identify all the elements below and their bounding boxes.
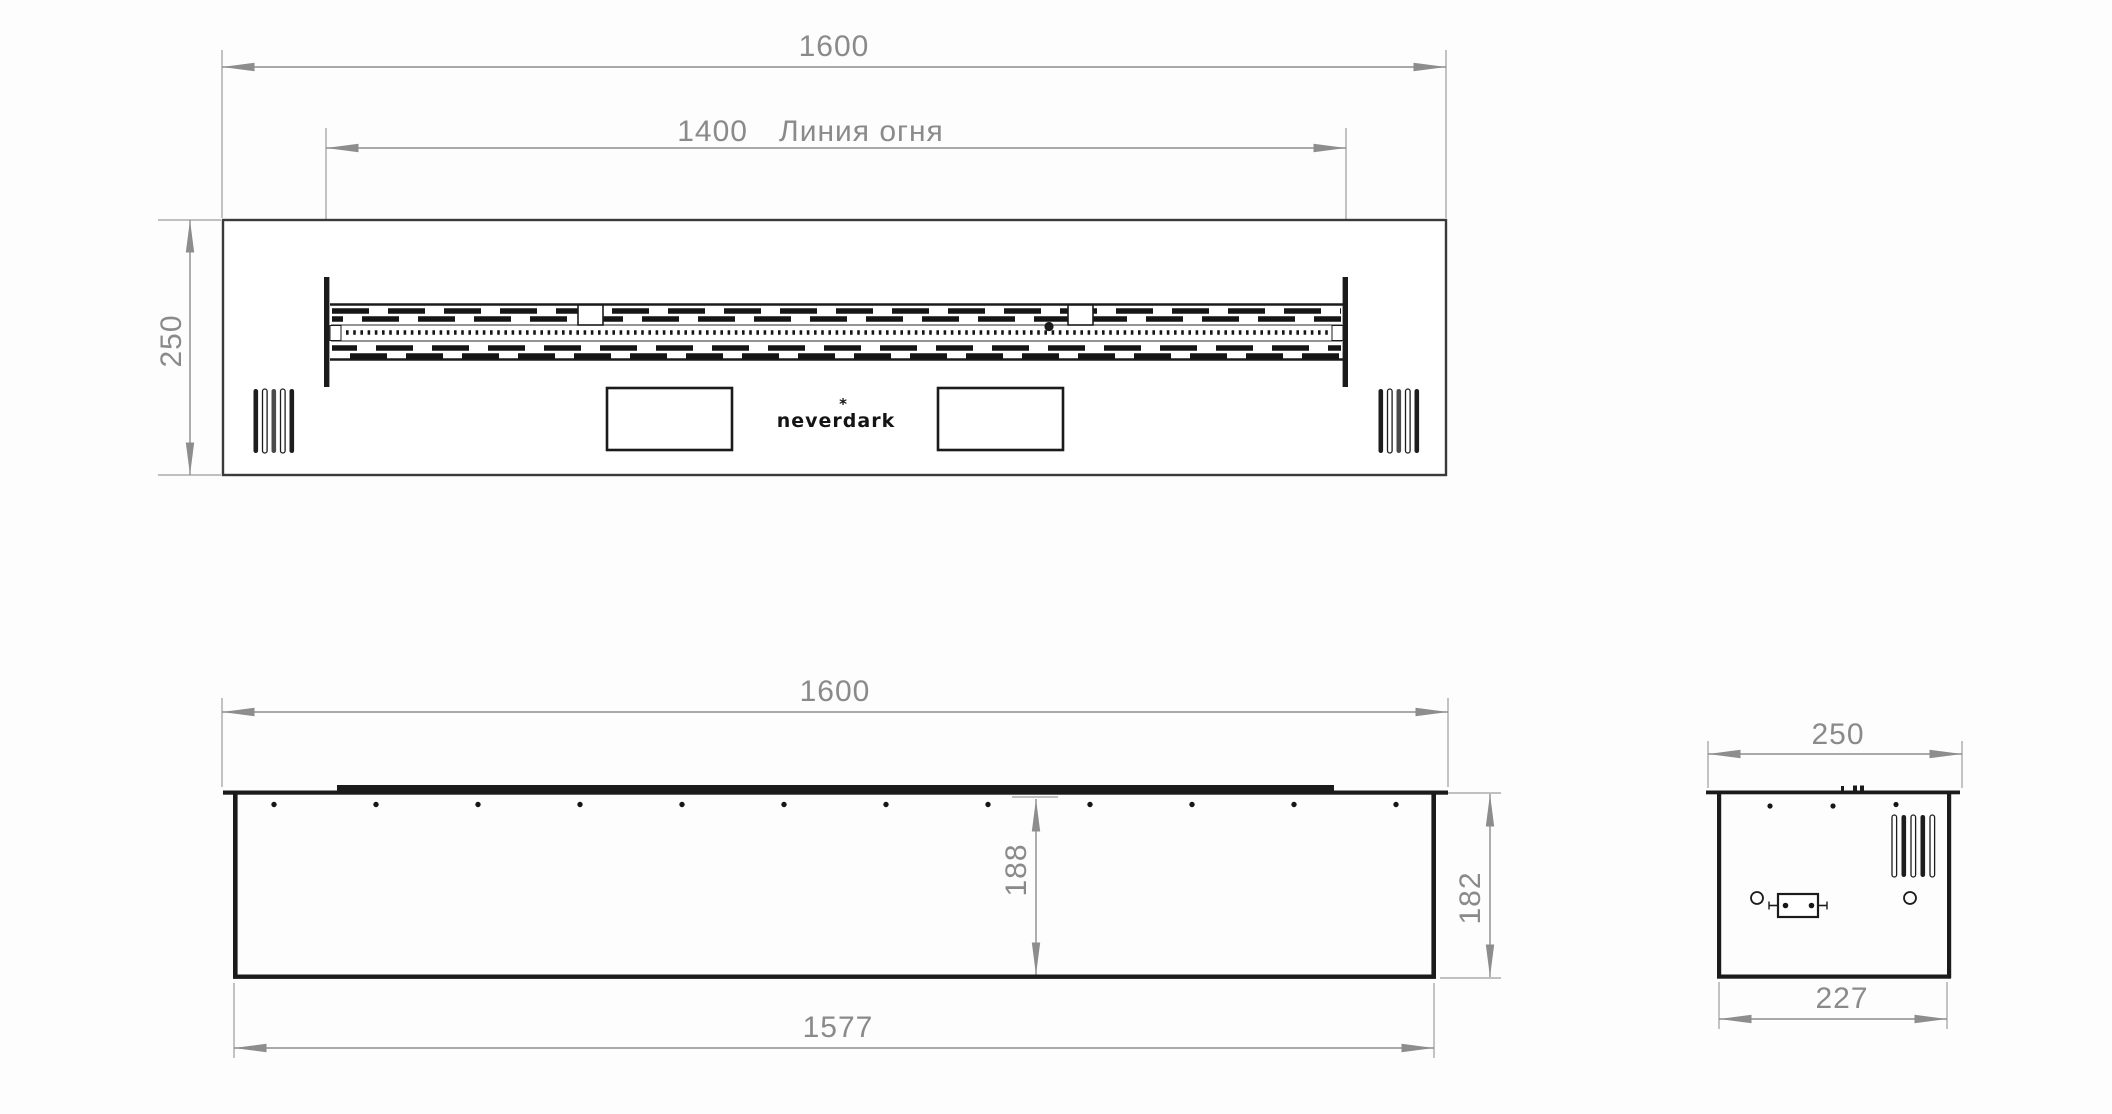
power-connector bbox=[1769, 894, 1827, 917]
front-left-edge bbox=[233, 795, 238, 979]
dimension-drawing-svg: 1600 1400 Линия огня 250 bbox=[0, 0, 2112, 1114]
burner-end-left bbox=[324, 277, 329, 387]
dim-front-inner-height-label: 188 bbox=[1000, 843, 1033, 896]
front-bottom-edge bbox=[233, 975, 1436, 979]
front-right-edge bbox=[1431, 795, 1436, 979]
dim-front-bottom-width: 1577 bbox=[234, 1011, 1434, 1048]
burner-notch-right bbox=[1332, 326, 1343, 341]
side-flange-tick-3 bbox=[1860, 786, 1864, 791]
front-view-extension-lines bbox=[222, 698, 1501, 1058]
side-bottom-edge bbox=[1717, 975, 1951, 979]
dim-front-body-height: 182 bbox=[1454, 794, 1490, 977]
dim-fire-line: 1400 Линия огня bbox=[326, 115, 1346, 148]
side-flange bbox=[1706, 791, 1960, 795]
dim-top-overall-width-label: 1600 bbox=[799, 30, 870, 63]
front-top-lip bbox=[337, 785, 1334, 791]
front-view-body bbox=[223, 785, 1448, 979]
side-flange-tick-1 bbox=[1841, 786, 1844, 791]
dim-fire-line-value: 1400 bbox=[677, 115, 748, 148]
front-screw-holes bbox=[271, 802, 1398, 807]
dim-fire-line-label: Линия огня bbox=[779, 115, 944, 148]
dim-front-overall-width-label: 1600 bbox=[800, 675, 871, 708]
dim-side-bottom-depth: 227 bbox=[1719, 982, 1947, 1019]
side-vent-grille bbox=[1892, 815, 1935, 877]
side-view: 250 227 bbox=[1706, 718, 1962, 1029]
side-view-body bbox=[1706, 786, 1960, 979]
dim-side-top-depth-label: 250 bbox=[1811, 718, 1864, 751]
dim-front-body-height-label: 182 bbox=[1454, 871, 1487, 924]
side-screw-holes bbox=[1767, 802, 1898, 809]
front-flange bbox=[223, 791, 1448, 795]
dim-front-overall-width: 1600 bbox=[222, 675, 1448, 712]
side-left-edge bbox=[1717, 794, 1721, 978]
dim-top-overall-width: 1600 bbox=[222, 30, 1446, 67]
burner-cutout-right bbox=[1068, 305, 1093, 325]
dim-front-inner-height: 188 bbox=[1000, 799, 1036, 975]
brand-logo-text: neverdark bbox=[777, 410, 895, 432]
side-right-edge bbox=[1947, 794, 1951, 978]
technical-drawing-page: 1600 1400 Линия огня 250 bbox=[0, 0, 2112, 1114]
dim-side-top-depth: 250 bbox=[1708, 718, 1962, 754]
dim-side-bottom-depth-label: 227 bbox=[1815, 982, 1868, 1015]
service-box-right bbox=[938, 388, 1063, 450]
dim-top-depth-label: 250 bbox=[155, 314, 188, 367]
side-hole-right bbox=[1904, 892, 1916, 904]
side-flange-tick-2 bbox=[1853, 786, 1857, 791]
dim-front-bottom-width-label: 1577 bbox=[803, 1011, 874, 1044]
top-view: 1600 1400 Линия огня 250 bbox=[155, 30, 1446, 475]
burner-notch-left bbox=[330, 326, 341, 341]
front-view: 1600 1577 188 182 bbox=[222, 675, 1501, 1058]
service-box-left bbox=[607, 388, 732, 450]
dim-top-depth: 250 bbox=[155, 220, 190, 475]
side-hole-left bbox=[1751, 892, 1763, 904]
igniter-dot bbox=[1044, 322, 1053, 331]
burner-cutout-left bbox=[578, 305, 603, 325]
